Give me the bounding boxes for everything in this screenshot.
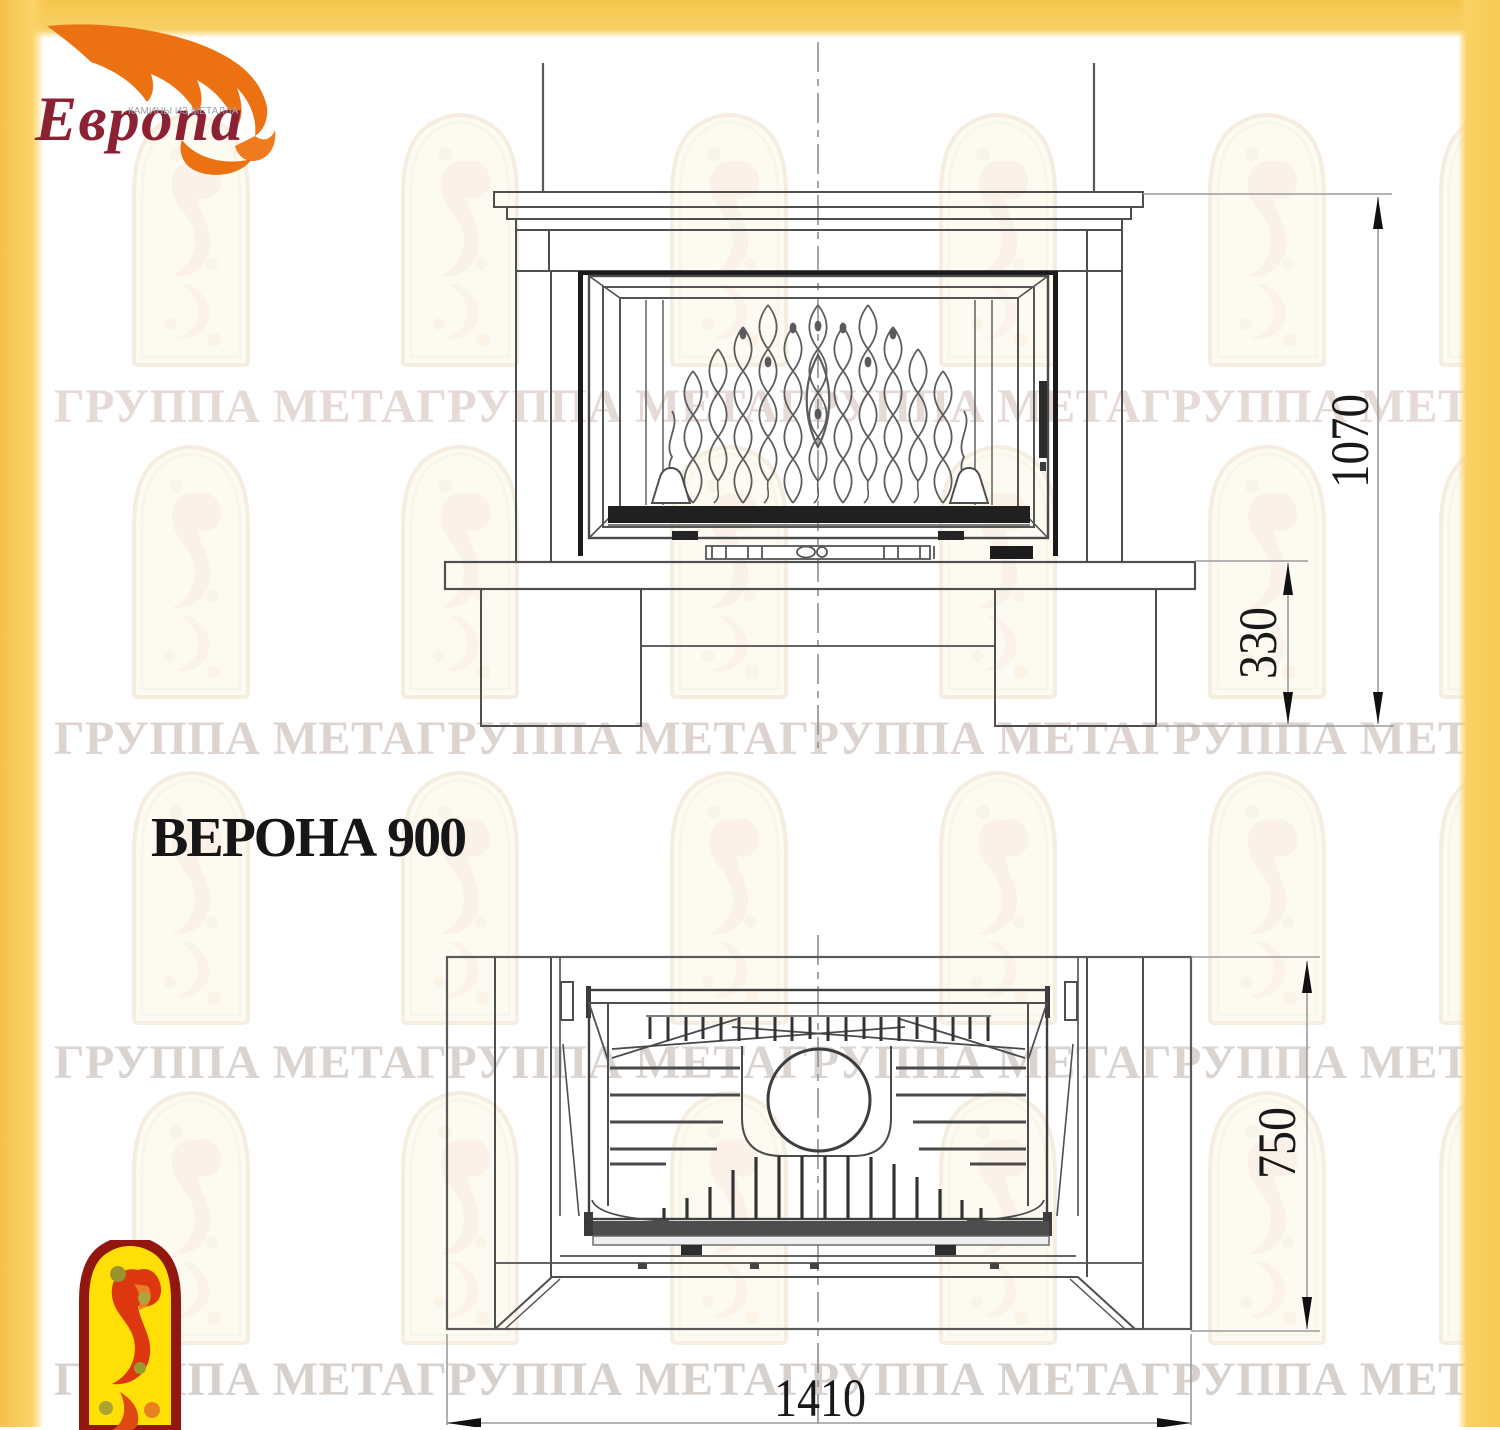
- svg-text:330: 330: [1228, 607, 1288, 679]
- svg-text:750: 750: [1247, 1107, 1307, 1179]
- svg-text:1070: 1070: [1320, 394, 1380, 488]
- svg-text:1410: 1410: [774, 1368, 866, 1427]
